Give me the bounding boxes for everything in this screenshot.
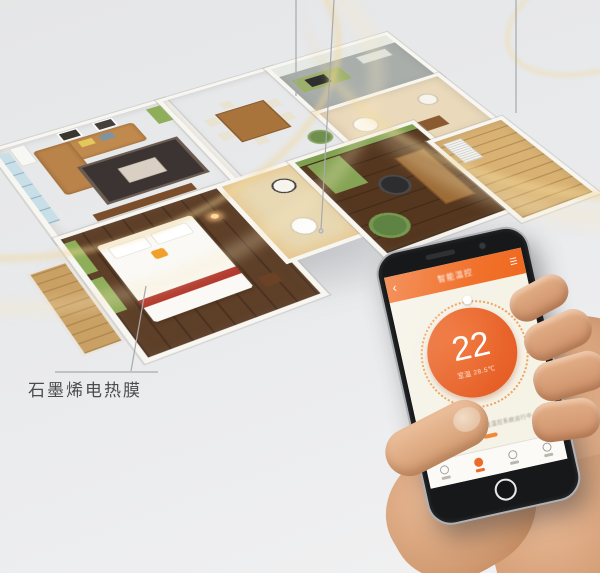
thumb-nail — [449, 402, 485, 436]
callout-label: 石墨烯电热膜 — [28, 376, 142, 401]
bed-logo-patch — [150, 247, 169, 259]
menu-icon[interactable]: ☰ — [508, 256, 518, 268]
earpiece — [425, 249, 455, 260]
tab-label — [544, 453, 553, 457]
plant — [307, 129, 335, 144]
tab-label — [510, 460, 519, 464]
thermostat-icon — [473, 457, 484, 468]
home-button[interactable] — [493, 476, 519, 502]
front-camera — [478, 241, 488, 251]
nightstand — [258, 272, 283, 287]
home-icon — [439, 465, 450, 476]
tab-label — [476, 468, 485, 472]
marketing-image-stage: 石墨烯电热膜 ‹ 智能温控 ☰ 22 室温 28.5℃ 石墨烯电热膜 — [0, 0, 600, 573]
nightstand — [202, 210, 225, 224]
wash-basin — [267, 176, 301, 196]
bedside-lamp — [209, 213, 220, 219]
plant-large — [366, 211, 413, 239]
radiator — [443, 138, 484, 163]
chair — [253, 135, 271, 145]
temperature-value: 22 — [449, 326, 493, 367]
back-icon[interactable]: ‹ — [391, 280, 399, 297]
toilet — [347, 114, 385, 134]
devices-icon — [508, 450, 519, 461]
tab-label — [442, 475, 451, 479]
office-chair — [376, 174, 414, 196]
toilet — [284, 214, 323, 238]
app-title: 智能温控 — [436, 266, 474, 285]
profile-icon — [542, 442, 553, 453]
bed — [96, 215, 253, 323]
wash-basin — [413, 92, 443, 107]
pillow — [150, 222, 195, 245]
pillow — [107, 236, 153, 259]
bed-runner — [138, 266, 242, 308]
